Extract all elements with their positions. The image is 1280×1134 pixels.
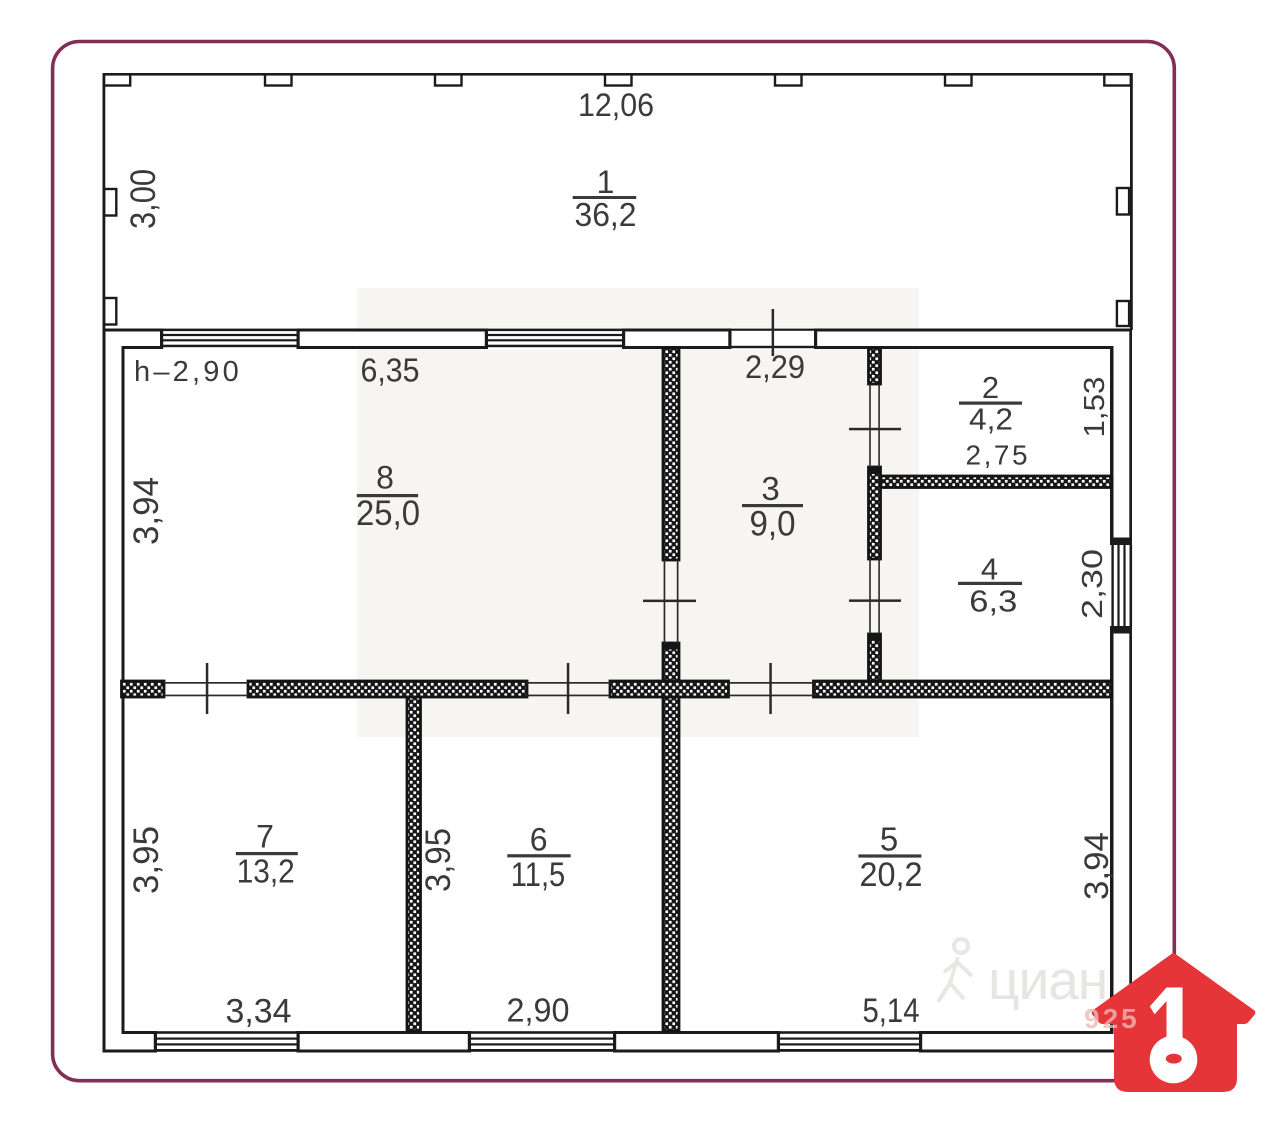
svg-text:2: 2 [982,370,999,405]
svg-text:25,0: 25,0 [356,494,420,533]
svg-text:2,75: 2,75 [966,440,1031,471]
svg-text:циан: циан [988,949,1107,1011]
svg-text:3,00: 3,00 [124,169,163,229]
svg-text:6: 6 [530,822,548,858]
svg-text:3,94: 3,94 [1078,832,1116,900]
svg-text:3,95: 3,95 [127,826,166,894]
svg-text:3,95: 3,95 [419,828,458,892]
svg-text:8: 8 [376,460,394,496]
svg-text:4,2: 4,2 [969,402,1013,437]
svg-text:20,2: 20,2 [860,856,923,894]
svg-text:6,3: 6,3 [969,584,1017,619]
svg-text:3,94: 3,94 [127,477,166,545]
svg-text:12,06: 12,06 [578,87,654,123]
svg-text:36,2: 36,2 [575,196,637,233]
svg-text:2,30: 2,30 [1077,549,1109,619]
svg-text:3,34: 3,34 [226,993,292,1031]
svg-text:1: 1 [597,164,615,200]
svg-text:2,90: 2,90 [507,992,570,1029]
svg-text:6,35: 6,35 [361,352,420,389]
svg-text:13,2: 13,2 [237,853,295,890]
svg-text:11,5: 11,5 [511,856,566,894]
svg-text:925: 925 [1084,1003,1140,1034]
svg-text:2,29: 2,29 [745,349,805,385]
svg-text:4: 4 [981,552,998,587]
svg-text:5: 5 [880,821,898,858]
svg-text:7: 7 [256,819,274,855]
svg-text:5,14: 5,14 [863,992,920,1030]
svg-text:1,53: 1,53 [1079,377,1111,438]
svg-text:9,0: 9,0 [750,505,796,544]
svg-text:3: 3 [761,470,779,507]
svg-text:h–2,90: h–2,90 [134,356,242,388]
